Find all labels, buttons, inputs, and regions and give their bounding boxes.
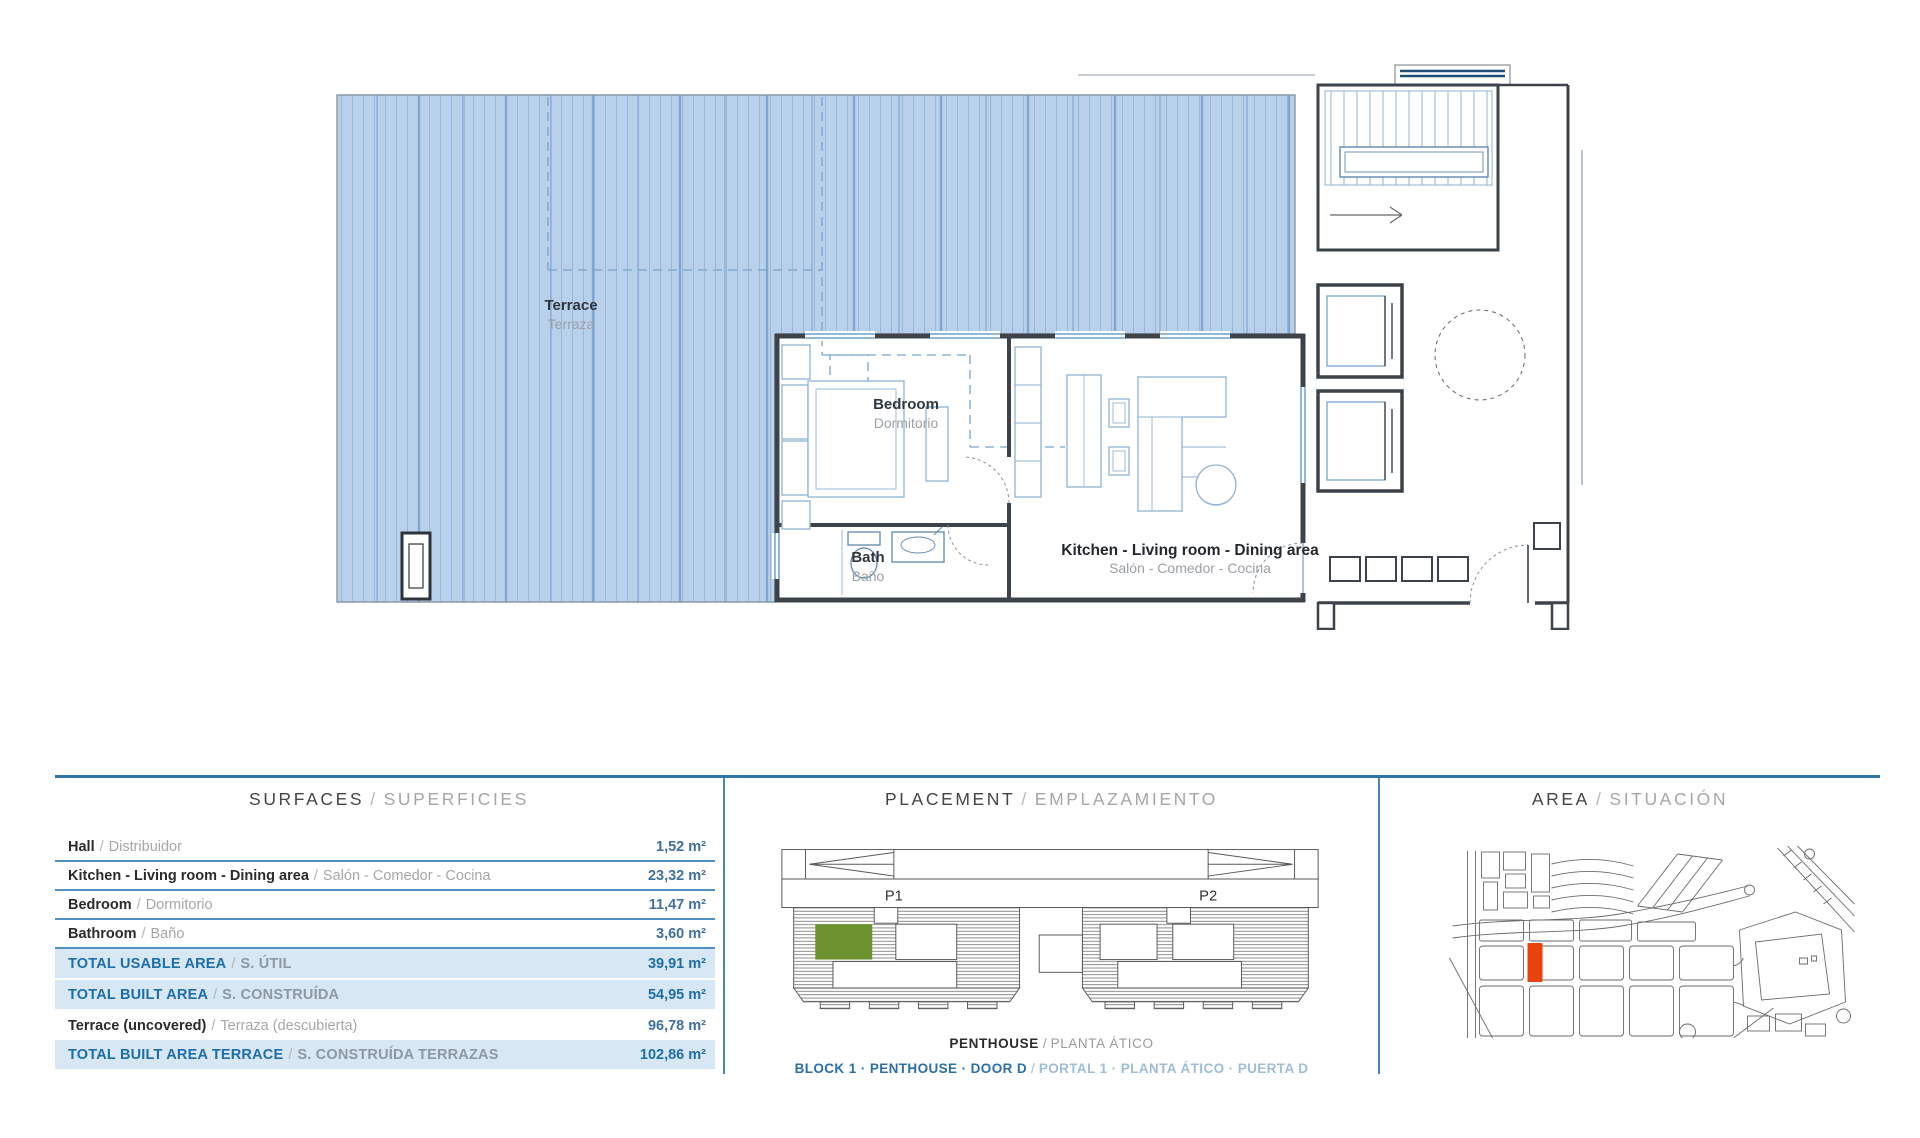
floor-caption: PENTHOUSE/PLANTA ÁTICO [725,1036,1378,1051]
interior-doors [948,457,1009,565]
kitchen-living-furniture [1015,347,1236,511]
location-map-svg [1447,846,1855,1038]
room-label-terrace: Terrace Terraza [544,297,597,333]
surfaces-title: SURFACES/SUPERFICIES [55,789,723,810]
placement-diagram-svg: P1 P2 [776,845,1326,1025]
panel-divider-left [723,778,725,1074]
portal-2-label: P2 [1199,889,1217,905]
unit-caption: BLOCK 1 · PENTHOUSE · DOOR D/PORTAL 1 · … [725,1061,1378,1076]
site-marker [1528,943,1543,982]
table-row-total: TOTAL USABLE AREA/S. ÚTIL 39,91 m² [55,949,715,978]
highlighted-unit [815,924,872,959]
portal-1-label: P1 [885,889,903,905]
table-row-total: TOTAL BUILT AREA/S. CONSTRUÍDA 54,95 m² [55,980,715,1009]
room-label-bath: Bath Baño [851,549,884,585]
plan-sheet-page: Terrace Terraza Bedroom Dormitorio Bath … [0,0,1920,1138]
room-label-bedroom: Bedroom Dormitorio [873,396,939,432]
floor-plan-svg [330,55,1660,630]
table-row: Hall/Distribuidor 1,52 m² [55,833,715,862]
table-row: Kitchen - Living room - Dining area/Saló… [55,862,715,891]
table-row: Bathroom/Baño 3,60 m² [55,920,715,949]
panel-divider-right [1378,778,1380,1074]
surfaces-table: Hall/Distribuidor 1,52 m² Kitchen - Livi… [55,833,715,1071]
placement-title: PLACEMENT/EMPLAZAMIENTO [725,789,1378,810]
building-block-2 [1082,908,1308,1009]
table-row-total: TOTAL BUILT AREA TERRACE/S. CONSTRUÍDA T… [55,1040,715,1069]
table-row: Bedroom/Dormitorio 11,47 m² [55,891,715,920]
area-title: AREA/SITUACIÓN [1380,789,1880,810]
room-label-kitchen-living: Kitchen - Living room - Dining area Saló… [1061,541,1319,578]
table-row: Terrace (uncovered)/Terraza (descubierta… [55,1011,715,1040]
bedroom-furniture [782,345,948,529]
building-block-1 [794,908,1020,1009]
panel-top-rule [55,775,1880,778]
